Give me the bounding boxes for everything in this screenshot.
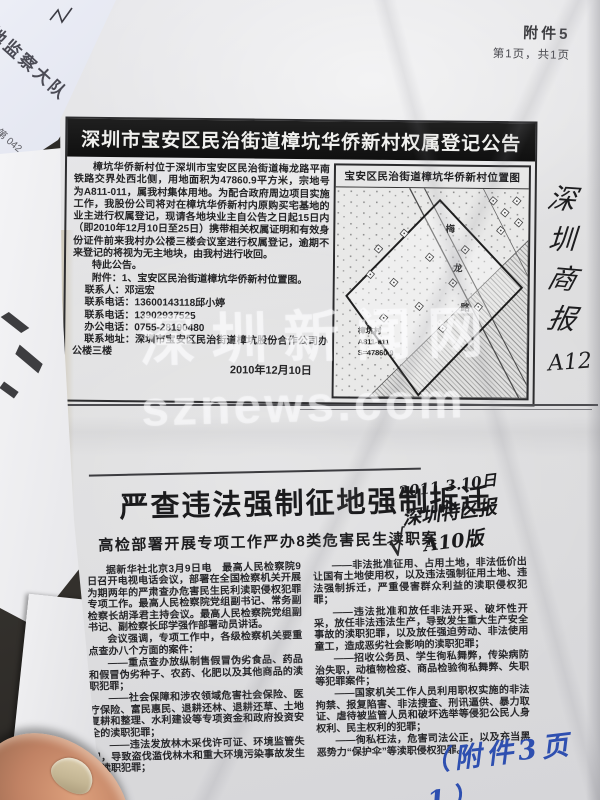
photo-of-documents: 土地监察大队 ）第 042 附件5 第1页，共1页 深圳市宝安区民治街道樟坑华侨… [0, 0, 600, 800]
map-parcel-number: A811-011 [358, 337, 390, 346]
location-map: 宝安区民治街道樟坑华侨新村位置图 [332, 163, 531, 400]
print-fragment [15, 345, 42, 374]
divider-line [300, 409, 592, 410]
map-road-label: 龙 [452, 262, 463, 273]
thumbnail [46, 750, 100, 800]
notice-title-banner: 深圳市宝安区民治街道樟坑华侨新村权属登记公告 [67, 119, 535, 162]
article-paragraph: 据新华社北京3月9日电 最高人民检察院9日召开电视电话会议，部署在全国检察机关开… [87, 561, 302, 634]
article-paragraph: ——非法批准征用、占用土地，非法低价出让国有土地使用权，以及违法强制征用土地、违… [313, 556, 528, 606]
map-parcel-area: S=47860.9 [358, 348, 394, 357]
notice-body: 樟坑华侨新村位于深圳市宝安区民治街道梅龙路平南铁路交界处西北侧，用地面积为478… [65, 157, 333, 403]
article-top-rule [89, 468, 421, 477]
article-paragraph: ——国家机关工作人员利用职权实施的非法拘禁、报复陷害、非法搜查、刑讯逼供、暴力取… [315, 685, 530, 735]
article-paragraph: ——违法批准和放任非法开采、破坏性开采，放任非法违法生产，导致发生重大生产安全事… [314, 603, 529, 653]
divider-line [62, 404, 598, 406]
handwritten-char: 商 [543, 258, 597, 301]
page-header: 附件5 第1页，共1页 [492, 21, 570, 63]
article-column-left: 据新华社北京3月9日电 最高人民检察院9日召开电视电话会议，部署在全国检察机关开… [87, 561, 305, 776]
notice-contact-line: 联系地址：深圳市宝安区民治街道樟坑股份合作公司办公楼三楼 [72, 334, 328, 361]
print-fragment [0, 381, 19, 398]
handwritten-page-number: A12 [547, 348, 593, 376]
article-paragraph: ——重点查办放纵制售假冒伪劣食品、药品和假冒伪劣种子、农药、化肥以及其他商品的渎… [89, 654, 304, 693]
map-drawing: 樟坑村 A811-011 S=47860.9 梅 龙 路 [334, 187, 529, 398]
handwritten-char: 深 [544, 179, 596, 222]
pen-scribble [48, 6, 78, 35]
underlying-doc-number: ）第 042 [0, 118, 26, 155]
handwritten-margin-note: 深 圳 商 报 A12 [548, 180, 592, 375]
handwritten-char: 圳 [547, 219, 594, 261]
page-indicator: 第1页，共1页 [492, 45, 570, 63]
article-paragraph: 会议强调，专项工作中，各级检察机关要重点查办八个方面的案件： [88, 631, 302, 658]
article-paragraph: ——违法发放林木采伐许可证、环境监管失职，导致盗伐滥伐林木和重大环境污染事故发生… [90, 736, 305, 775]
attachment-label: 附件5 [493, 21, 571, 44]
article-clipping: 严查违法强制征地强制拆迁 2011.3.10日 深圳特区报 A10版 高检部署开… [85, 465, 535, 776]
notice-clipping: 深圳市宝安区民治街道樟坑华侨新村权属登记公告 樟坑华侨新村位于深圳市宝安区民治街… [63, 117, 538, 407]
map-title: 宝安区民治街道樟坑华侨新村位置图 [336, 165, 529, 189]
map-road-label: 梅 [446, 223, 456, 234]
article-paragraph: ——招收公务员、学生徇私舞弊，传染病防治失职，动植物检疫、商品检验徇私舞弊、失职… [315, 650, 530, 689]
handwritten-char: 报 [544, 299, 596, 342]
main-document-sheet: 附件5 第1页，共1页 深圳市宝安区民治街道樟坑华侨新村权属登记公告 樟坑华侨新… [0, 0, 600, 800]
map-road-label: 路 [461, 302, 471, 313]
article-paragraph: ——社会保障和涉农领域危害社会保险、医疗保险、富民惠民、退耕还林、退耕还草、土地… [89, 690, 304, 740]
notice-date: 2010年12月10日 [72, 362, 328, 377]
notice-paragraph: 樟坑华侨新村位于深圳市宝安区民治街道梅龙路平南铁路交界处西北侧，用地面积为478… [73, 162, 330, 263]
print-fragment [1, 312, 30, 333]
map-parcel-name: 樟坑村 [358, 325, 382, 335]
